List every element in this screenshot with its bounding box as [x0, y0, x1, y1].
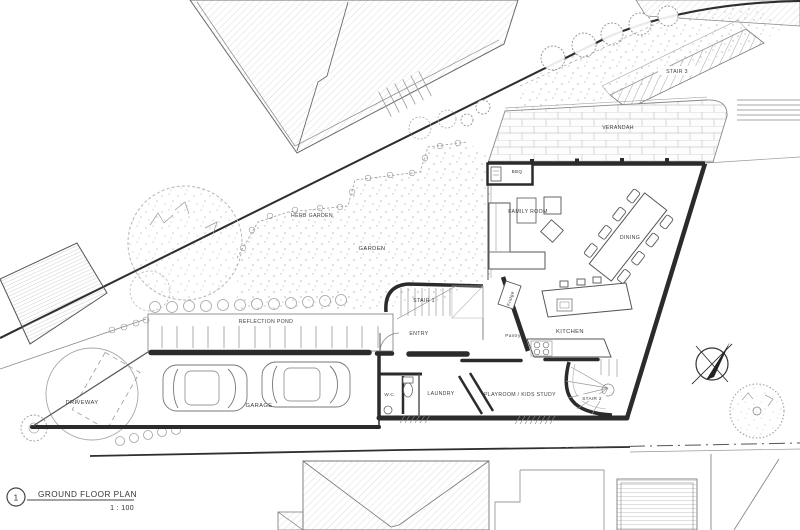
verandah-label: VERANDAH	[602, 125, 634, 131]
kitchen-island	[542, 283, 632, 317]
basin	[384, 406, 392, 414]
driveway-label: DRIVEWAY	[65, 400, 98, 406]
cooktop-bench	[527, 339, 611, 357]
neighbour-structure-southeast	[711, 454, 779, 530]
neighbour-building-outline	[495, 470, 604, 530]
car-left	[163, 365, 247, 411]
dining-label: DINING	[620, 235, 640, 241]
garden-label: GARDEN	[359, 246, 386, 252]
entry-label: ENTRY	[409, 331, 428, 337]
drawing-number: 1	[13, 493, 18, 503]
kitchen-label: KITCHEN	[556, 329, 584, 335]
playroom-label: PLAYROOM / KIDS STUDY	[484, 392, 556, 398]
armchair-2	[541, 220, 564, 243]
car-right	[262, 362, 350, 407]
garage-label: GARAGE	[246, 403, 273, 409]
drawing-scale: 1 : 100	[110, 505, 134, 512]
stair3-label: STAIR 3	[666, 69, 688, 75]
north-arrow-icon	[692, 342, 732, 384]
drawing-title: GROUND FLOOR PLAN	[38, 490, 137, 499]
neighbour-shed-west	[0, 243, 149, 369]
tree-southeast	[730, 384, 784, 438]
neighbour-roof-south	[278, 461, 489, 530]
floor-plan-svg: STAIR 3 VERANDAH BBQ FAMILY ROOM DINING …	[0, 0, 800, 530]
family-room-label: FAMILY ROOM	[508, 209, 547, 215]
bbq-nook	[488, 164, 533, 185]
herb-garden-label: HERB GARDEN	[291, 213, 333, 219]
neighbour-pool	[617, 479, 697, 530]
floor-plan-sheet: STAIR 3 VERANDAH BBQ FAMILY ROOM DINING …	[0, 0, 800, 530]
large-tree	[128, 186, 242, 311]
toilet	[403, 377, 413, 397]
title-block: 1 GROUND FLOOR PLAN 1 : 100	[7, 488, 137, 512]
stair2-treads	[566, 359, 617, 414]
pantry-label: Pantry	[505, 333, 521, 338]
stair2-label: STAIR 2	[582, 396, 602, 401]
stair2-label-group: STAIR 2	[578, 394, 606, 401]
stair1-label: STAIR 1	[413, 298, 435, 304]
street-boundary-lines	[90, 443, 800, 456]
neighbour-roof-northwest	[190, 0, 518, 153]
wc-label: W.C.	[384, 392, 395, 397]
bbq-label: BBQ	[512, 169, 523, 174]
laundry-label: LAUNDRY	[427, 391, 454, 397]
reflection-pond-label: REFLECTION POND	[239, 319, 294, 325]
